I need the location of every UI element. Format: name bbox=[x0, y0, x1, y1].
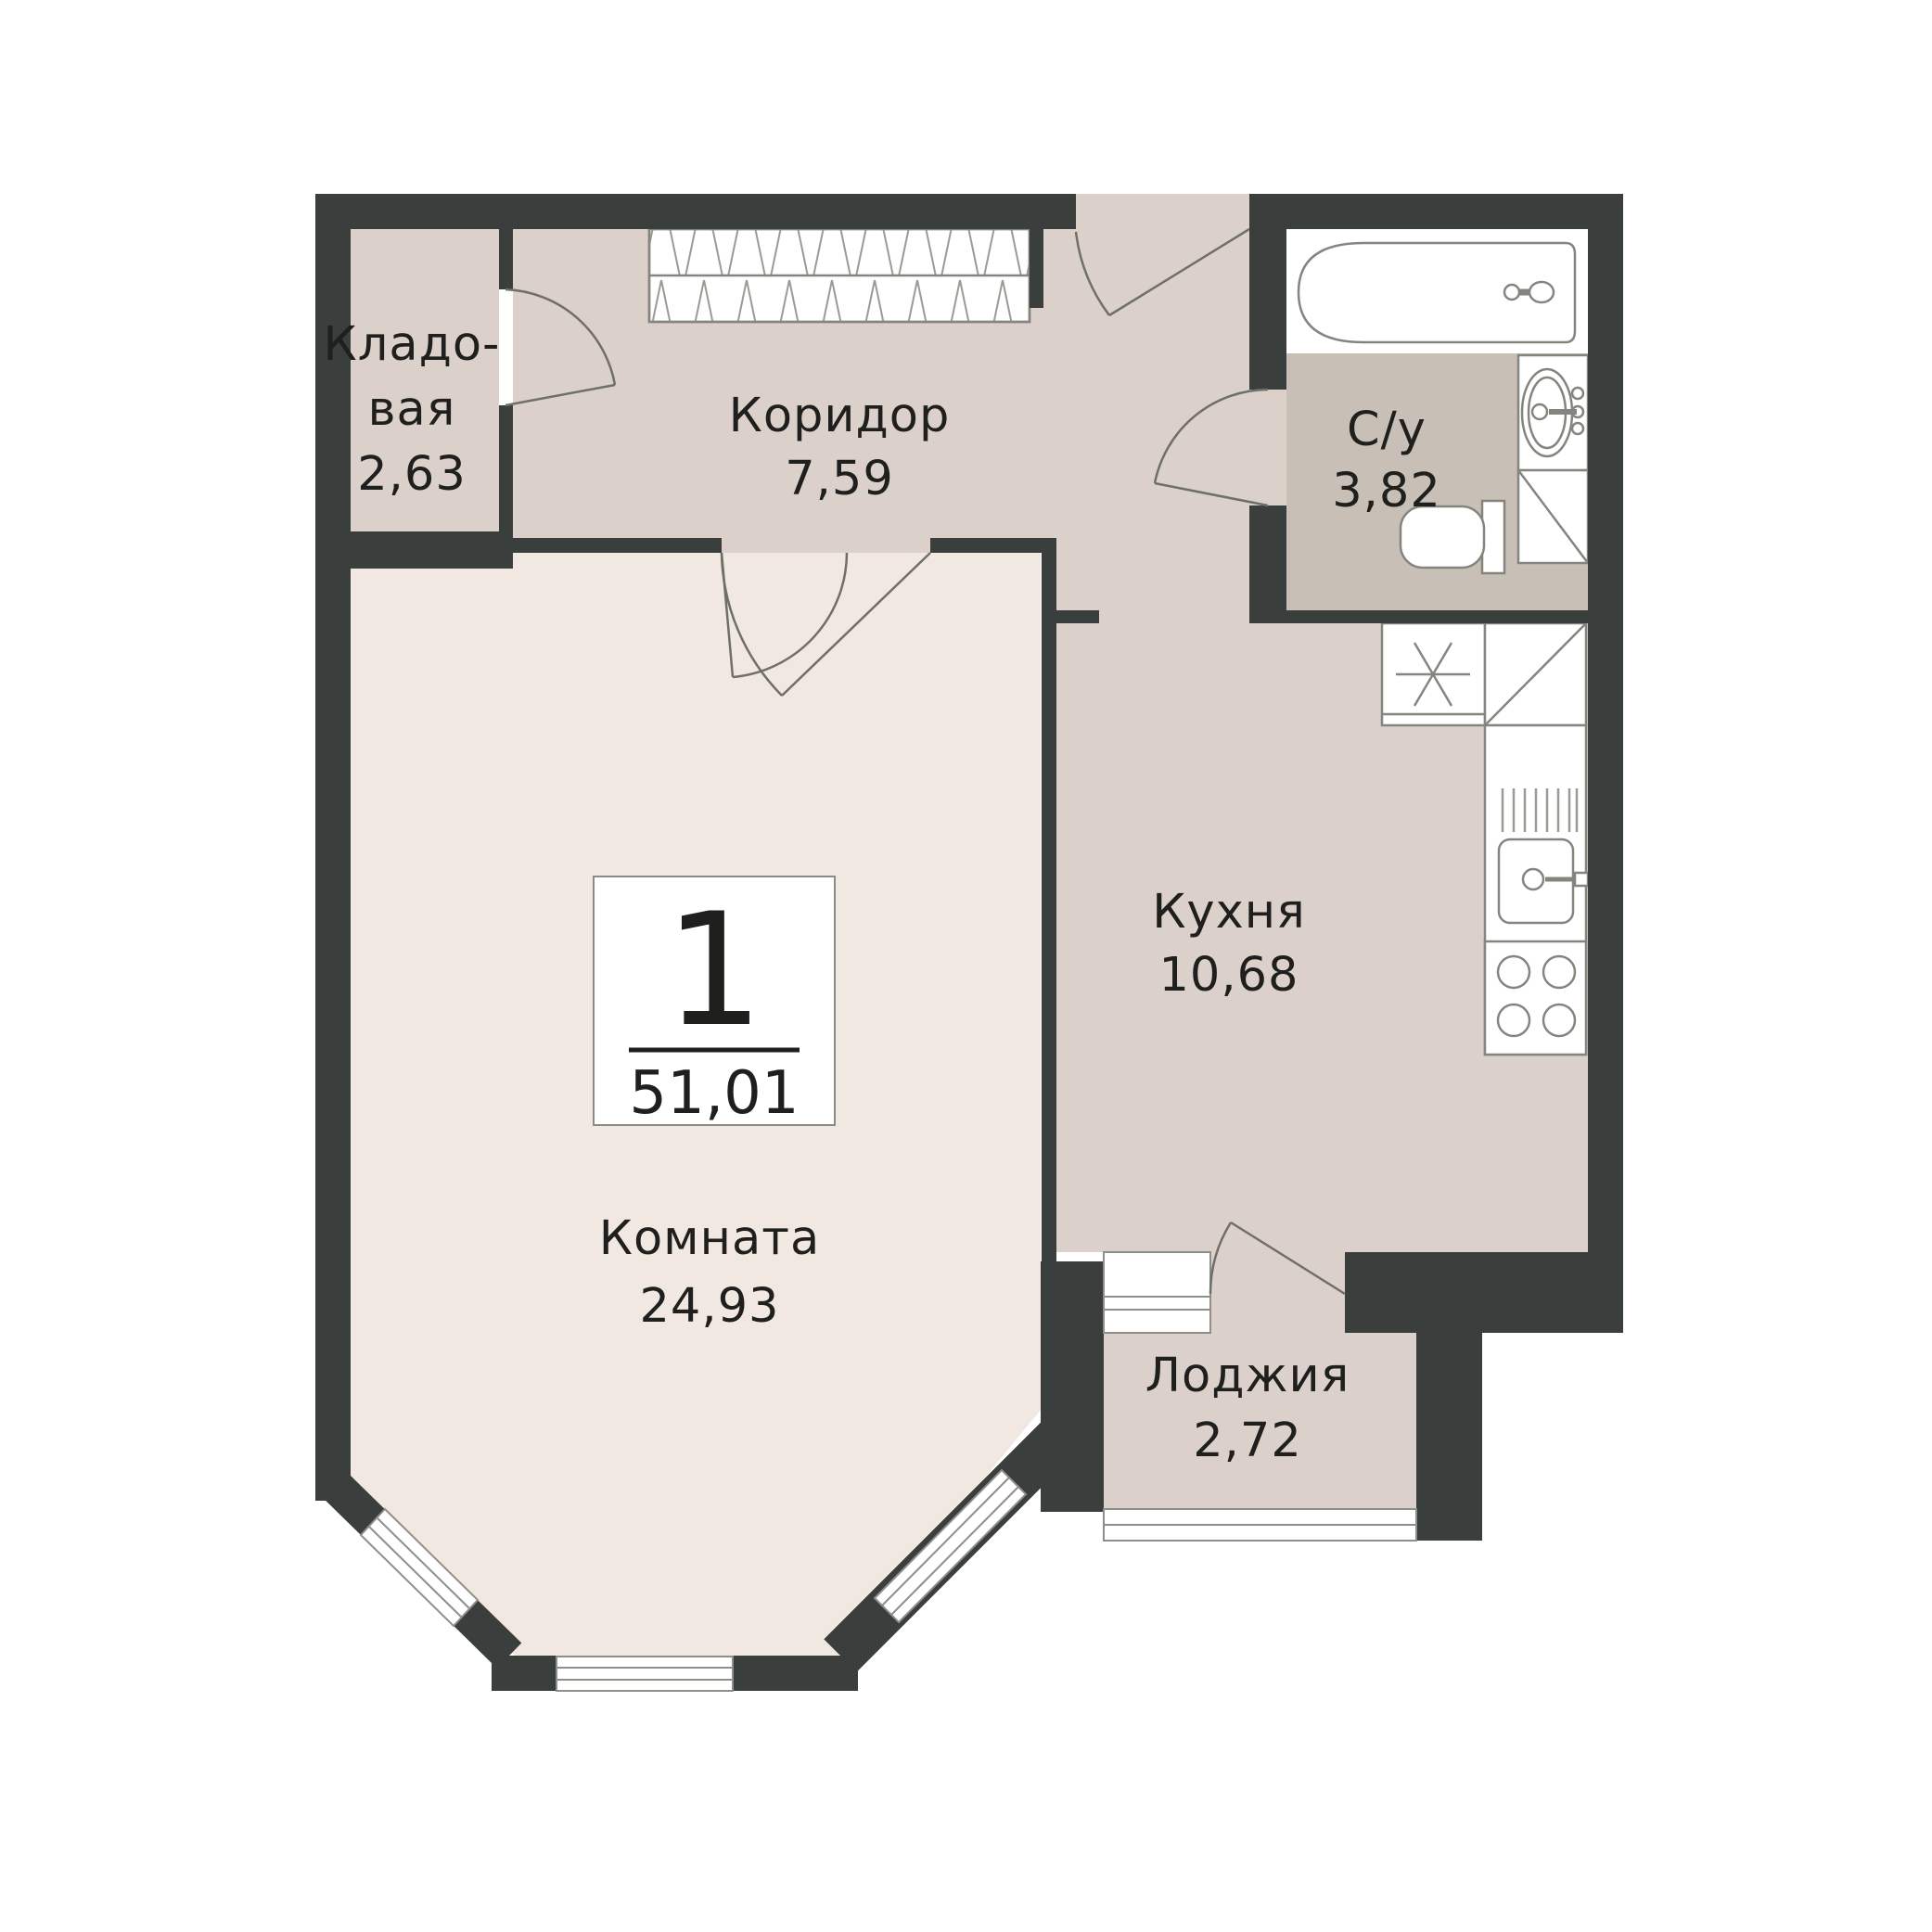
wall-loggia-step bbox=[1345, 1252, 1623, 1333]
wall-hall-kitchen-stub bbox=[1056, 610, 1099, 623]
water-heater-icon bbox=[1518, 470, 1588, 563]
wall-loggia-right bbox=[1416, 1333, 1482, 1541]
badge-total-area: 51,01 bbox=[629, 1059, 799, 1128]
bay-window-bottom-icon bbox=[557, 1657, 733, 1691]
wall-storage-partition-bottom bbox=[499, 405, 513, 531]
floor-plan-page: Кладо- вая 2,63 Коридор 7,59 С/у 3,82 Ку… bbox=[0, 0, 1932, 1932]
wall-living-top-left bbox=[513, 538, 722, 553]
washing-machine-icon bbox=[1382, 623, 1485, 725]
wall-bathroom-bottom bbox=[1249, 610, 1588, 623]
corridor-name: Коридор bbox=[729, 389, 951, 443]
wall-left bbox=[315, 194, 351, 1501]
kitchen-area: 10,68 bbox=[1158, 948, 1299, 1003]
bathroom-name: С/у bbox=[1347, 403, 1427, 457]
entrance-niche-floor bbox=[1076, 194, 1249, 231]
storage-name-line2: вая bbox=[368, 382, 456, 437]
wardrobe-icon bbox=[649, 229, 1030, 322]
washbasin-icon bbox=[1518, 355, 1588, 470]
apartment-badge: 1 51,01 bbox=[594, 876, 835, 1128]
wall-storage-partition-top bbox=[499, 229, 513, 289]
loggia-area: 2,72 bbox=[1193, 1414, 1302, 1468]
wall-living-top-right bbox=[930, 538, 1056, 553]
wall-storage-bottom bbox=[351, 531, 513, 569]
fridge-icon bbox=[1485, 623, 1586, 725]
wall-living-kitchen bbox=[1042, 553, 1056, 1276]
bathtub-icon bbox=[1299, 243, 1575, 342]
badge-room-count: 1 bbox=[665, 879, 764, 1061]
wall-top-right bbox=[1249, 194, 1623, 229]
stove-icon bbox=[1485, 941, 1586, 1055]
living-area: 24,93 bbox=[639, 1279, 779, 1334]
loggia-name: Лоджия bbox=[1145, 1349, 1350, 1403]
bathroom-area: 3,82 bbox=[1332, 464, 1441, 518]
wall-top-left bbox=[315, 194, 1076, 229]
living-name: Комната bbox=[599, 1211, 820, 1266]
floor-plan: Кладо- вая 2,63 Коридор 7,59 С/у 3,82 Ку… bbox=[0, 0, 1932, 1932]
loggia-glazing-icon bbox=[1104, 1509, 1416, 1541]
wall-right bbox=[1588, 194, 1623, 1333]
wall-bathroom-left-bottom bbox=[1249, 505, 1286, 623]
corridor-area: 7,59 bbox=[785, 452, 894, 506]
wall-bathroom-left-top bbox=[1249, 229, 1286, 390]
kitchen-name: Кухня bbox=[1152, 885, 1306, 940]
storage-name-line1: Кладо- bbox=[324, 317, 501, 372]
wall-wardrobe-stub bbox=[1030, 229, 1043, 308]
storage-area: 2,63 bbox=[357, 447, 467, 502]
kitchen-loggia-window-icon bbox=[1104, 1252, 1210, 1333]
